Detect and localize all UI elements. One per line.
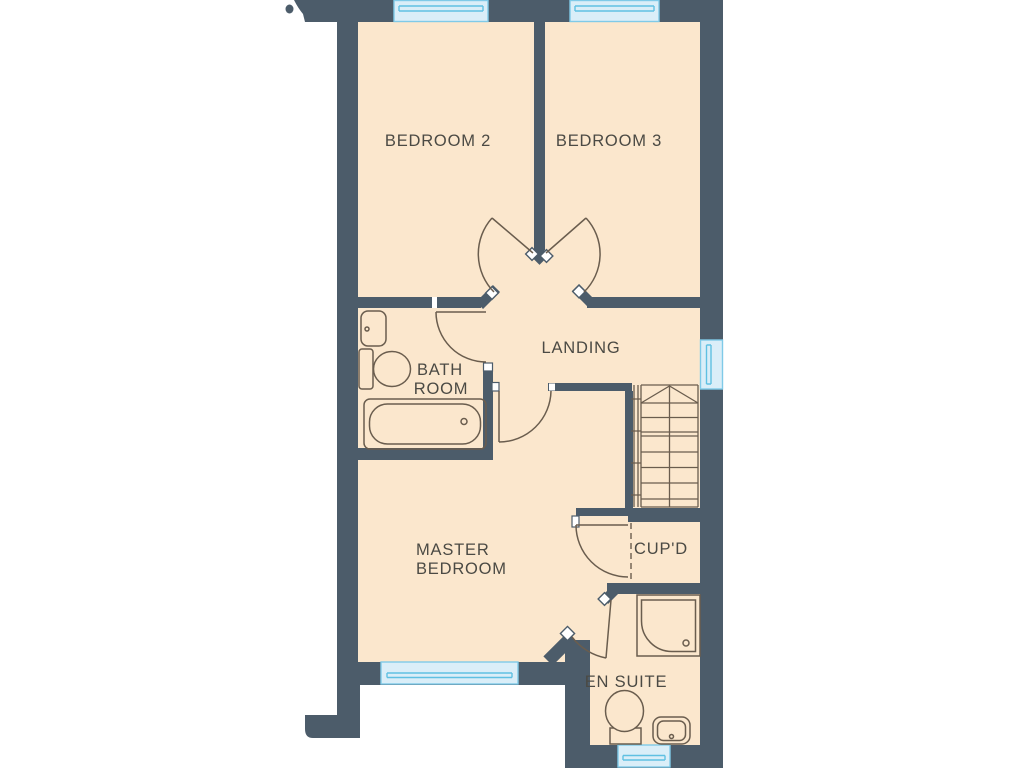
wall-bedroom3-bottom bbox=[587, 297, 700, 308]
wall-below-stairs bbox=[628, 508, 700, 522]
label-cupboard: CUP'D bbox=[634, 540, 688, 558]
wall-right-exterior-lower bbox=[700, 389, 723, 768]
wall-fragment-dot bbox=[286, 5, 294, 14]
floor-plan-canvas: BEDROOM 2 BEDROOM 3 LANDING BATH ROOM MA… bbox=[0, 0, 1024, 768]
label-bathroom-line2: ROOM bbox=[414, 380, 469, 398]
wall-bathroom-bottom bbox=[358, 448, 493, 460]
floor-plan: BEDROOM 2 BEDROOM 3 LANDING BATH ROOM MA… bbox=[0, 0, 1024, 768]
jamb-bathroom-door bbox=[484, 363, 493, 371]
wall-bottom-left-stub bbox=[305, 685, 360, 738]
window-master bbox=[381, 662, 518, 684]
wall-cupboard-ensuite bbox=[607, 583, 700, 594]
window-bedroom3 bbox=[570, 1, 659, 22]
label-bedroom2: BEDROOM 2 bbox=[385, 132, 491, 150]
wall-ensuite-left bbox=[565, 640, 590, 745]
floor-areas bbox=[345, 6, 712, 750]
label-ensuite: EN SUITE bbox=[585, 673, 668, 691]
wall-left-exterior bbox=[337, 22, 358, 685]
wall-landing-master bbox=[548, 383, 632, 391]
wall-master-stairs bbox=[625, 391, 633, 515]
label-landing: LANDING bbox=[542, 339, 621, 357]
window-ensuite bbox=[618, 745, 670, 767]
wall-right-exterior-upper bbox=[700, 22, 723, 340]
wall-bedroom2-bottom bbox=[358, 297, 481, 308]
window-bedroom2 bbox=[394, 1, 488, 22]
jamb-gap-bathroom-wall bbox=[432, 297, 437, 308]
label-master-line2: BEDROOM bbox=[416, 560, 507, 578]
wall-bedroom-divider bbox=[534, 22, 545, 250]
label-master-line1: MASTER bbox=[416, 541, 490, 559]
wall-below-stairs-stub bbox=[576, 508, 628, 516]
jamb-master-door bbox=[492, 383, 499, 392]
label-bathroom-line1: BATH bbox=[417, 361, 463, 379]
label-bedroom3: BEDROOM 3 bbox=[556, 132, 662, 150]
jamb-gap-landing-wall bbox=[549, 384, 555, 391]
window-landing bbox=[701, 340, 723, 389]
